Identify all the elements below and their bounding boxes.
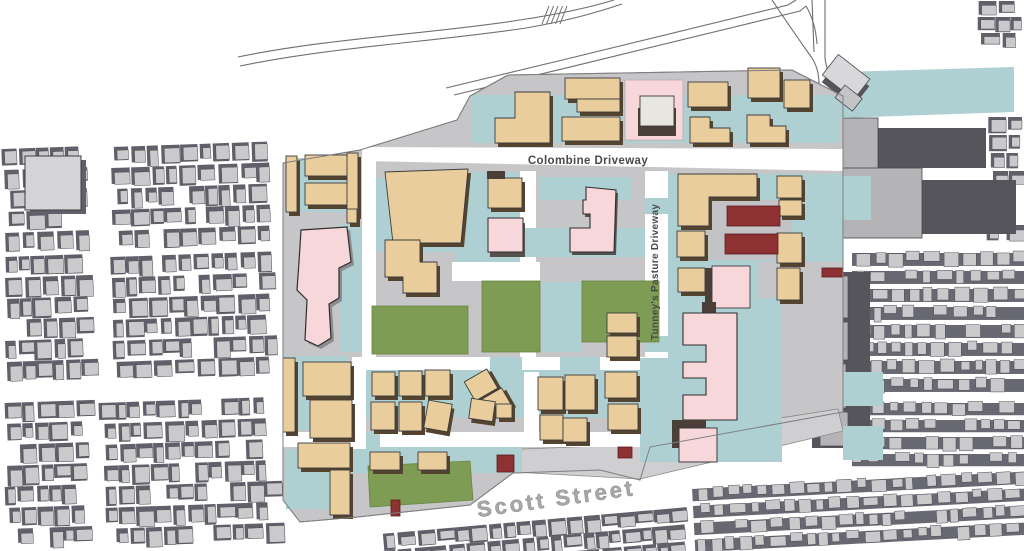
house: [178, 529, 193, 543]
house: [883, 494, 897, 507]
house: [178, 362, 194, 372]
house: [891, 378, 903, 386]
house: [55, 364, 64, 380]
maroon-building: [727, 206, 780, 226]
house: [181, 258, 191, 270]
house: [1008, 453, 1016, 463]
house: [203, 147, 211, 158]
house: [21, 533, 33, 544]
pink-cube-building: [679, 428, 717, 462]
house: [22, 259, 30, 269]
house: [730, 503, 746, 513]
house: [784, 499, 795, 511]
house: [551, 521, 567, 536]
house: [214, 258, 223, 269]
house: [981, 420, 990, 429]
house: [259, 360, 270, 373]
house: [959, 437, 973, 450]
street-label-colombine-driveway: Colombine Driveway: [528, 155, 649, 167]
house: [109, 489, 117, 505]
house: [1015, 472, 1024, 486]
house: [122, 234, 133, 245]
house: [64, 488, 76, 504]
house: [58, 404, 74, 417]
house: [58, 446, 73, 461]
residential-left: [110, 251, 279, 380]
house: [136, 364, 152, 378]
house: [22, 342, 35, 352]
house: [1002, 270, 1014, 279]
walkway: [843, 426, 883, 460]
house: [132, 300, 148, 316]
house: [992, 137, 1007, 149]
house: [35, 300, 52, 317]
house: [241, 229, 256, 243]
house: [12, 511, 20, 522]
house: [130, 343, 146, 355]
house: [638, 513, 654, 522]
house: [76, 529, 92, 540]
house: [23, 448, 37, 463]
house: [10, 427, 21, 440]
house: [948, 342, 961, 356]
house: [1002, 324, 1011, 332]
house: [959, 455, 968, 464]
walkway: [843, 176, 871, 220]
house: [998, 20, 1010, 31]
residential-right: [852, 251, 1024, 393]
house: [910, 289, 920, 301]
walkway: [840, 67, 1014, 118]
house: [983, 507, 993, 518]
house: [1011, 436, 1023, 448]
house: [937, 380, 953, 389]
house: [1006, 523, 1019, 532]
house: [961, 362, 970, 370]
house: [8, 280, 22, 296]
house: [242, 400, 250, 414]
tan-building: [347, 153, 358, 215]
house: [134, 172, 150, 186]
house: [57, 466, 71, 476]
house: [974, 524, 986, 535]
house: [671, 544, 686, 551]
house: [8, 236, 19, 251]
tan-building: [777, 233, 802, 263]
house: [48, 258, 64, 273]
walkway: [490, 357, 522, 373]
house: [10, 366, 23, 381]
house: [701, 520, 714, 533]
house: [48, 212, 62, 226]
house: [178, 321, 191, 336]
tan-building: [540, 415, 563, 440]
house: [120, 191, 128, 203]
house: [79, 403, 95, 415]
house: [28, 280, 41, 297]
house: [46, 321, 57, 337]
house: [146, 404, 156, 415]
house: [259, 507, 268, 520]
road-line: [240, 4, 622, 66]
house: [228, 257, 238, 270]
house: [42, 447, 56, 461]
house: [701, 503, 711, 512]
house: [1014, 324, 1024, 338]
house: [672, 510, 688, 522]
house: [192, 404, 202, 415]
house: [789, 517, 800, 530]
house: [919, 361, 935, 374]
tan-building: [777, 176, 802, 198]
house: [645, 547, 657, 551]
house: [241, 421, 252, 435]
house: [79, 279, 93, 296]
tan-building: [562, 117, 620, 141]
house: [990, 378, 1004, 392]
house: [188, 210, 196, 223]
road-line: [806, 6, 817, 44]
house: [997, 253, 1010, 265]
house: [752, 502, 759, 511]
house: [128, 261, 139, 274]
house: [891, 342, 900, 352]
house: [152, 341, 162, 353]
tan-building: [305, 183, 352, 205]
house: [878, 342, 887, 353]
house: [917, 324, 930, 337]
house: [153, 211, 164, 223]
house: [159, 405, 175, 418]
house: [566, 536, 582, 546]
house: [535, 524, 547, 537]
house: [755, 535, 764, 545]
house: [828, 496, 840, 508]
house: [924, 252, 940, 262]
residential-left: [2, 400, 100, 550]
house: [135, 467, 150, 484]
house: [870, 272, 884, 281]
residential-left: [110, 142, 272, 250]
roof-accent: [487, 171, 505, 179]
house: [995, 505, 1004, 516]
house: [1013, 251, 1024, 262]
house: [924, 378, 932, 390]
house: [116, 323, 124, 337]
house: [217, 341, 231, 358]
house: [934, 403, 947, 414]
house: [937, 289, 948, 300]
house: [892, 479, 903, 488]
house: [587, 537, 596, 549]
tan-building: [607, 336, 637, 357]
house: [981, 20, 995, 29]
house: [193, 319, 207, 334]
site-plan: Colombine Driveway Tunney's Pasture Driv…: [0, 0, 1024, 551]
house: [181, 486, 194, 498]
house: [520, 525, 531, 535]
house: [129, 321, 145, 336]
house: [116, 343, 125, 358]
house: [204, 300, 217, 311]
house: [8, 489, 16, 504]
house: [989, 523, 1002, 536]
house: [943, 438, 956, 452]
house: [79, 319, 94, 332]
house: [917, 494, 933, 505]
house: [903, 529, 912, 538]
house: [714, 505, 724, 516]
house: [262, 276, 276, 289]
house: [936, 510, 947, 523]
house: [905, 478, 913, 490]
house: [940, 359, 954, 372]
house: [799, 499, 812, 513]
house: [116, 302, 126, 312]
house: [188, 425, 198, 436]
house: [216, 527, 231, 539]
residential-left: [98, 397, 285, 550]
tan-building-group: [423, 400, 455, 436]
house: [161, 192, 174, 206]
house: [137, 234, 149, 248]
house: [154, 467, 169, 480]
house: [107, 470, 119, 481]
house: [255, 144, 268, 160]
house: [816, 500, 824, 510]
house: [471, 527, 487, 541]
house: [386, 535, 395, 549]
house: [670, 529, 686, 540]
tan-building: [399, 371, 422, 396]
house: [966, 325, 981, 337]
house: [887, 359, 896, 369]
school-building: [25, 156, 81, 210]
house: [7, 174, 19, 190]
house: [196, 257, 208, 269]
house: [102, 405, 117, 419]
house: [167, 232, 180, 247]
house: [770, 536, 786, 546]
house: [655, 529, 668, 543]
tan-building: [605, 372, 637, 398]
house: [884, 305, 897, 313]
house: [962, 508, 976, 518]
pink-comb-building: [683, 313, 737, 420]
house: [168, 425, 184, 442]
house: [975, 360, 982, 370]
house: [807, 533, 816, 545]
house: [883, 530, 897, 541]
house: [974, 288, 988, 302]
house: [895, 511, 905, 520]
house: [261, 231, 270, 242]
house: [142, 260, 153, 277]
house: [117, 150, 129, 160]
house: [155, 169, 164, 184]
house: [770, 518, 783, 528]
house: [122, 511, 135, 524]
house: [491, 545, 502, 551]
house: [805, 516, 818, 526]
tan-building: [777, 268, 800, 300]
house: [73, 466, 87, 480]
house: [221, 190, 230, 206]
house: [924, 420, 935, 428]
house: [33, 259, 44, 274]
house: [122, 426, 131, 441]
house: [953, 307, 967, 317]
house: [526, 542, 536, 551]
house: [222, 231, 235, 241]
house: [26, 235, 34, 247]
house: [26, 366, 36, 380]
house: [923, 287, 932, 301]
house: [244, 167, 256, 178]
house: [40, 511, 53, 526]
house: [440, 530, 455, 539]
house: [790, 532, 802, 541]
house: [1009, 155, 1018, 166]
house: [869, 514, 878, 524]
maroon-building: [497, 455, 514, 472]
house: [1006, 37, 1016, 48]
house: [245, 210, 254, 223]
tan-building: [330, 470, 350, 515]
house: [133, 530, 145, 542]
house: [986, 306, 996, 317]
house: [900, 494, 913, 506]
tan-building: [283, 358, 295, 432]
house: [974, 306, 984, 315]
office-shadow: [908, 180, 1016, 234]
house: [202, 279, 211, 294]
tan-building: [469, 398, 496, 421]
house: [905, 343, 913, 356]
house: [903, 402, 915, 412]
house: [79, 444, 90, 456]
house: [839, 514, 853, 525]
house: [200, 169, 214, 180]
house: [874, 326, 885, 339]
house: [228, 210, 240, 226]
house: [505, 543, 520, 551]
house: [219, 297, 235, 312]
house: [109, 510, 118, 521]
house: [24, 510, 36, 524]
house: [941, 474, 956, 486]
walkway: [541, 282, 582, 352]
house: [69, 362, 81, 378]
house: [23, 301, 32, 316]
house: [735, 519, 748, 528]
house: [469, 544, 485, 551]
house: [750, 520, 766, 532]
house: [67, 258, 83, 274]
house: [856, 254, 870, 266]
house: [725, 536, 734, 549]
house: [64, 279, 76, 296]
house: [10, 470, 23, 487]
house: [115, 282, 125, 298]
house: [856, 512, 864, 524]
house: [182, 232, 197, 246]
house: [604, 516, 618, 525]
house: [20, 490, 33, 501]
house: [84, 362, 98, 375]
house: [133, 425, 141, 435]
house: [910, 379, 918, 387]
house: [891, 324, 900, 334]
house: [134, 212, 150, 226]
tan-building: [347, 209, 357, 223]
house: [996, 472, 1011, 485]
house: [740, 536, 753, 550]
house: [712, 539, 723, 551]
house: [1013, 21, 1021, 30]
house: [968, 341, 977, 350]
house: [224, 402, 239, 415]
house: [122, 489, 135, 504]
house: [147, 323, 157, 333]
house: [570, 520, 584, 534]
house: [176, 278, 184, 289]
house: [421, 533, 436, 545]
house: [165, 259, 176, 272]
tan-building: [418, 452, 447, 470]
house: [821, 516, 836, 530]
house: [201, 232, 216, 245]
house: [1014, 360, 1024, 370]
house: [847, 496, 860, 508]
house: [40, 489, 48, 501]
street-label-tunneys-pasture-driveway: Tunney's Pasture Driveway: [650, 204, 661, 341]
house: [12, 213, 25, 224]
house: [890, 420, 902, 431]
house: [41, 404, 57, 417]
house: [1010, 506, 1024, 517]
house: [935, 325, 945, 339]
house: [216, 145, 230, 160]
tan-building: [371, 402, 395, 430]
park: [482, 281, 540, 352]
house: [119, 533, 128, 543]
house: [58, 344, 66, 359]
house: [984, 37, 1000, 44]
pink-building: [712, 266, 750, 308]
house: [235, 145, 249, 159]
house: [1002, 4, 1015, 12]
house: [161, 280, 170, 295]
house: [207, 506, 216, 523]
house: [1000, 360, 1010, 373]
house: [983, 343, 998, 353]
house: [971, 270, 981, 281]
tan-building: [538, 377, 563, 410]
house: [52, 424, 68, 440]
house: [836, 479, 852, 492]
pink-building: [488, 218, 523, 252]
house: [620, 516, 636, 528]
house: [873, 290, 888, 299]
house: [261, 255, 272, 272]
house: [965, 419, 977, 431]
house: [892, 289, 905, 301]
house: [184, 446, 194, 457]
house: [993, 437, 1006, 447]
tan-building: [286, 156, 297, 212]
house: [248, 528, 264, 539]
